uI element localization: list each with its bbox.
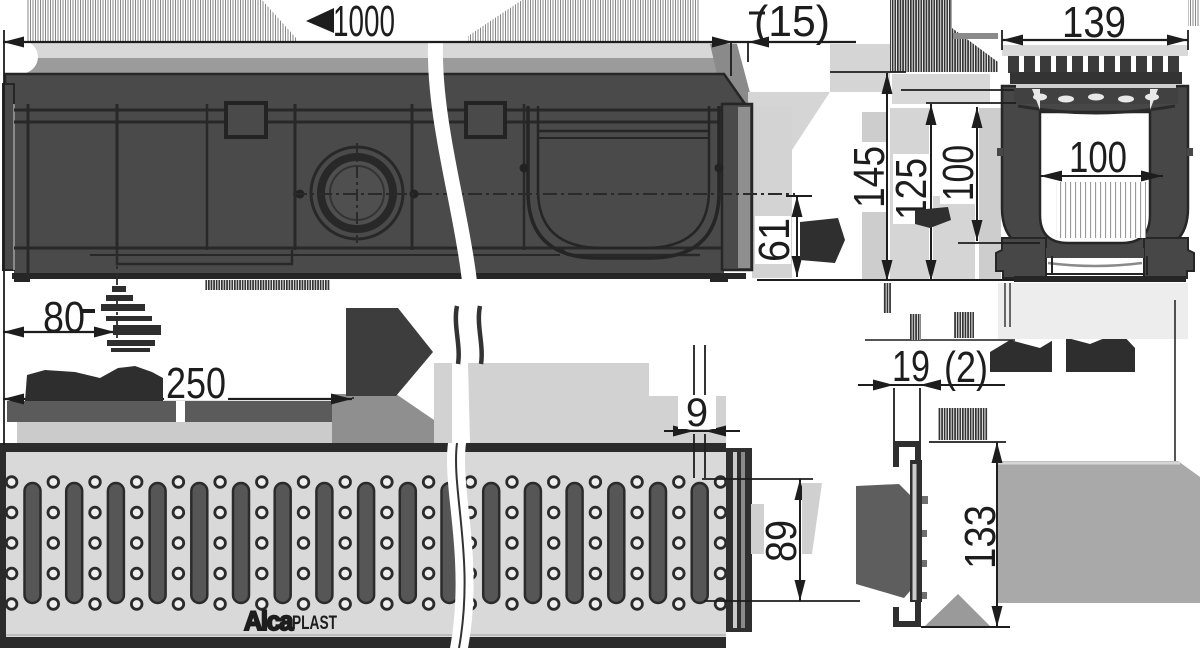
svg-text:PLAST: PLAST	[292, 613, 337, 634]
svg-text:133: 133	[956, 505, 1005, 569]
svg-text:61: 61	[750, 218, 799, 262]
svg-text:100: 100	[1069, 133, 1127, 182]
svg-text:80: 80	[43, 293, 85, 342]
svg-text:89: 89	[757, 520, 806, 562]
svg-text:1000: 1000	[333, 0, 395, 46]
svg-text:(2): (2)	[944, 343, 988, 392]
svg-text:139: 139	[1062, 0, 1126, 47]
svg-text:(15): (15)	[754, 0, 830, 46]
svg-text:19: 19	[892, 342, 930, 391]
svg-text:250: 250	[166, 359, 226, 408]
svg-text:9: 9	[686, 391, 708, 435]
svg-text:Alca: Alca	[244, 606, 294, 636]
svg-text:100: 100	[934, 145, 983, 201]
